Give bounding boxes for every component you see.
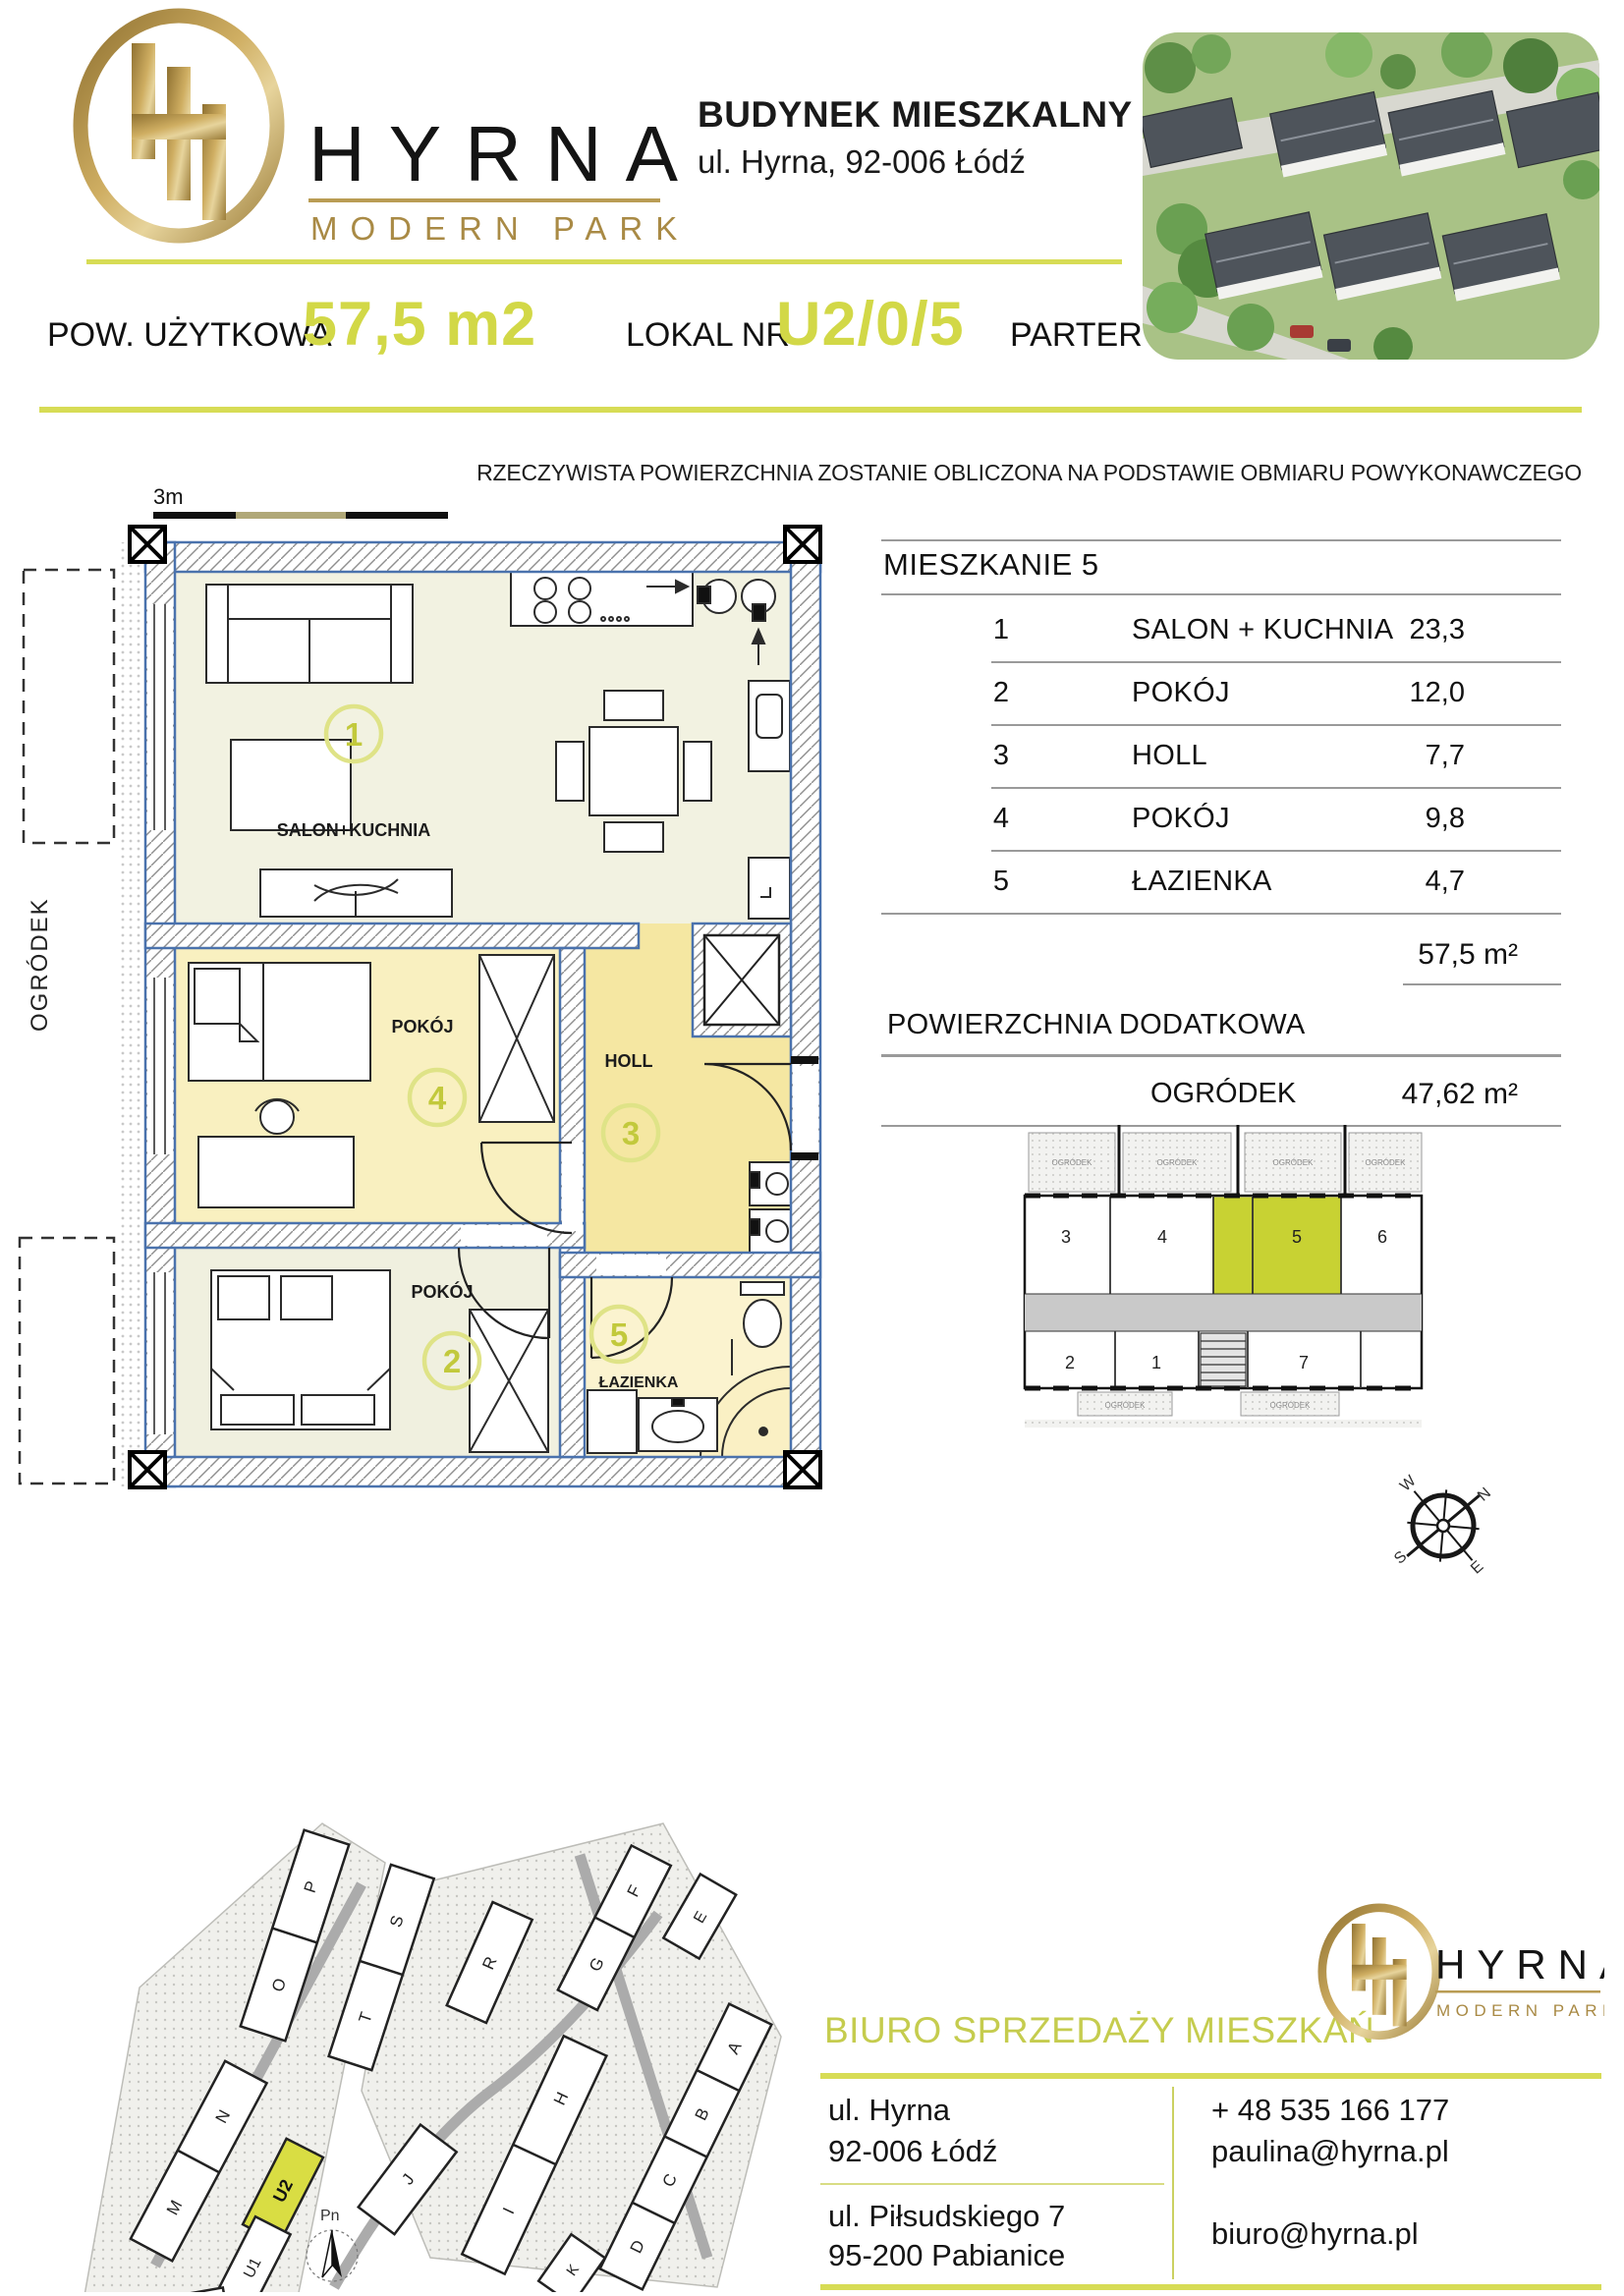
extra-row: OGRÓDEK 47,62 m² (881, 1062, 1561, 1125)
room-label: POKÓJ (391, 1016, 453, 1036)
row-no: 1 (980, 614, 1023, 646)
ventilation-shaft (704, 935, 779, 1025)
total-area: 57,5 m² (1255, 938, 1518, 972)
site-plan: P O S T R N M U2 (29, 1796, 796, 2292)
car (1327, 339, 1351, 352)
office-email1: paulina@hyrna.pl (1211, 2134, 1449, 2169)
unit-number: 1 (1151, 1353, 1161, 1372)
garden-strip-bottom: OGRÓDEK OGRÓDEK (1025, 1392, 1422, 1428)
office-divider (1172, 2087, 1174, 2279)
scale-bar: 3m (153, 484, 448, 519)
office-address1-line2: 92-006 Łódź (828, 2134, 997, 2169)
office-bottom-rule (820, 2284, 1601, 2290)
row-no: 3 (980, 740, 1023, 772)
room-table: MIESZKANIE 5 1 SALON + KUCHNIA 23,3 2 PO… (881, 539, 1561, 1129)
brand-name: HYRNA (308, 110, 690, 197)
room-number: 3 (622, 1115, 640, 1151)
garden-label: OGRÓDEK (1366, 1158, 1407, 1167)
lokal-label: LOKAL NR (626, 316, 790, 355)
garden-label: OGRÓDEK (1105, 1401, 1147, 1410)
brand-tagline: MODERN PARK (310, 210, 690, 247)
car (1290, 325, 1314, 338)
sales-office-block: BIURO SPRZEDAŻY MIESZKAŃ HYRNA MODERN PA… (818, 1896, 1604, 2296)
compass-s: S (1391, 1548, 1410, 1568)
floor-overview: OGRÓDEK OGRÓDEK OGRÓDEK OGRÓDEK (1017, 1125, 1429, 1439)
row-no: 5 (980, 866, 1023, 898)
row-name: POKÓJ (1132, 677, 1230, 709)
garden-label: OGRÓDEK (1273, 1158, 1315, 1167)
table-total-row: 57,5 m² (881, 923, 1561, 985)
building-title-block: BUDYNEK MIESZKALNY U2 ul. Hyrna, 92-006 … (698, 94, 1190, 181)
room-number: 2 (443, 1343, 461, 1379)
garden-boundary (20, 1238, 114, 1484)
unit5-room (1213, 1198, 1253, 1295)
room-label: SALON+KUCHNIA (277, 820, 431, 840)
compass-n: N (1475, 1484, 1494, 1504)
office-email2: biuro@hyrna.pl (1211, 2216, 1419, 2252)
row-name: POKÓJ (1132, 803, 1230, 835)
table-row: 5 ŁAZIENKA 4,7 (881, 850, 1561, 913)
row-name: ŁAZIENKA (1132, 866, 1272, 898)
table-row: 1 SALON + KUCHNIA 23,3 (881, 598, 1561, 661)
garden-label: OGRÓDEK (1157, 1158, 1199, 1167)
stairwell (1201, 1333, 1246, 1386)
extra-header: POWIERZCHNIA DODATKOWA (887, 1009, 1306, 1041)
scale-label: 3m (153, 484, 184, 509)
garden-strip-top: OGRÓDEK OGRÓDEK OGRÓDEK OGRÓDEK (1029, 1125, 1422, 1194)
row-area: 9,8 (1347, 803, 1465, 835)
room-label: HOLL (605, 1051, 653, 1071)
compass-e: E (1468, 1558, 1486, 1577)
row-area: 23,3 (1347, 614, 1465, 646)
garden-boundary (24, 570, 114, 843)
brand-tagline: MODERN PARK (1436, 2001, 1604, 2020)
floor-label: PARTER (1010, 316, 1143, 355)
unit-number: 4 (1157, 1227, 1167, 1247)
compass-rose-icon: W N S E (1388, 1467, 1498, 1577)
north-label: Pn (320, 2208, 340, 2224)
floor-plan: 3m OGRÓDEK (10, 476, 835, 1518)
room-label: ŁAZIENKA (599, 1374, 679, 1391)
building-address: ul. Hyrna, 92-006 Łódź (698, 143, 1190, 181)
brand-logo: HYRNA MODERN PARK (22, 6, 690, 259)
table-row: 2 POKÓJ 12,0 (881, 661, 1561, 724)
table-row: 3 HOLL 7,7 (881, 724, 1561, 787)
windows (147, 604, 173, 1434)
compass-w: W (1397, 1472, 1420, 1494)
building-title: BUDYNEK MIESZKALNY U2 (698, 94, 1190, 136)
room-label: POKÓJ (411, 1281, 473, 1302)
row-area: 7,7 (1347, 740, 1465, 772)
extra-value: 47,62 m² (1255, 1078, 1518, 1111)
room-number: 1 (345, 716, 363, 753)
office-thin-rule (820, 2183, 1164, 2185)
office-address2-line2: 95-200 Pabianice (828, 2238, 1065, 2273)
room-number: 4 (428, 1080, 447, 1116)
hyrna-monogram-icon (81, 16, 277, 236)
office-address2-line1: ul. Piłsudskiego 7 (828, 2199, 1065, 2234)
row-no: 2 (980, 677, 1023, 709)
unit-number: 5 (1292, 1227, 1302, 1247)
brand-name: HYRNA (1435, 1941, 1604, 1988)
office-address1-line1: ul. Hyrna (828, 2093, 950, 2128)
area-value: 57,5 m2 (303, 289, 536, 360)
unit-number: 6 (1377, 1227, 1387, 1247)
facade-strip (118, 542, 145, 1486)
header-rule (86, 259, 1122, 264)
unit-number: 7 (1299, 1353, 1309, 1372)
row-area: 4,7 (1347, 866, 1465, 898)
row-name: HOLL (1132, 740, 1207, 772)
unit-number: 3 (1061, 1227, 1071, 1247)
row-area: 12,0 (1347, 677, 1465, 709)
garden-label: OGRÓDEK (1052, 1158, 1093, 1167)
lokal-value: U2/0/5 (776, 289, 965, 360)
office-phone: + 48 535 166 177 (1211, 2093, 1449, 2128)
area-label: POW. UŻYTKOWA (47, 316, 332, 355)
unit-number: 2 (1065, 1353, 1075, 1372)
flyer-page: HYRNA MODERN PARK BUDYNEK MIESZKALNY U2 … (0, 0, 1624, 2296)
brand-underline (1435, 1990, 1600, 1993)
estate-aerial-photo (1143, 32, 1599, 360)
room-number: 5 (610, 1316, 628, 1353)
corridor (1025, 1294, 1422, 1331)
garden-side-label: OGRÓDEK (27, 897, 53, 1032)
brand-underline (308, 198, 660, 202)
table-row: 4 POKÓJ 9,8 (881, 787, 1561, 850)
band-rule (39, 407, 1582, 413)
garden-label: OGRÓDEK (1270, 1401, 1312, 1410)
table-title: MIESZKANIE 5 (883, 547, 1099, 583)
office-rule (820, 2073, 1601, 2079)
row-no: 4 (980, 803, 1023, 835)
brand-logo-small: HYRNA MODERN PARK (1288, 1896, 1604, 2069)
